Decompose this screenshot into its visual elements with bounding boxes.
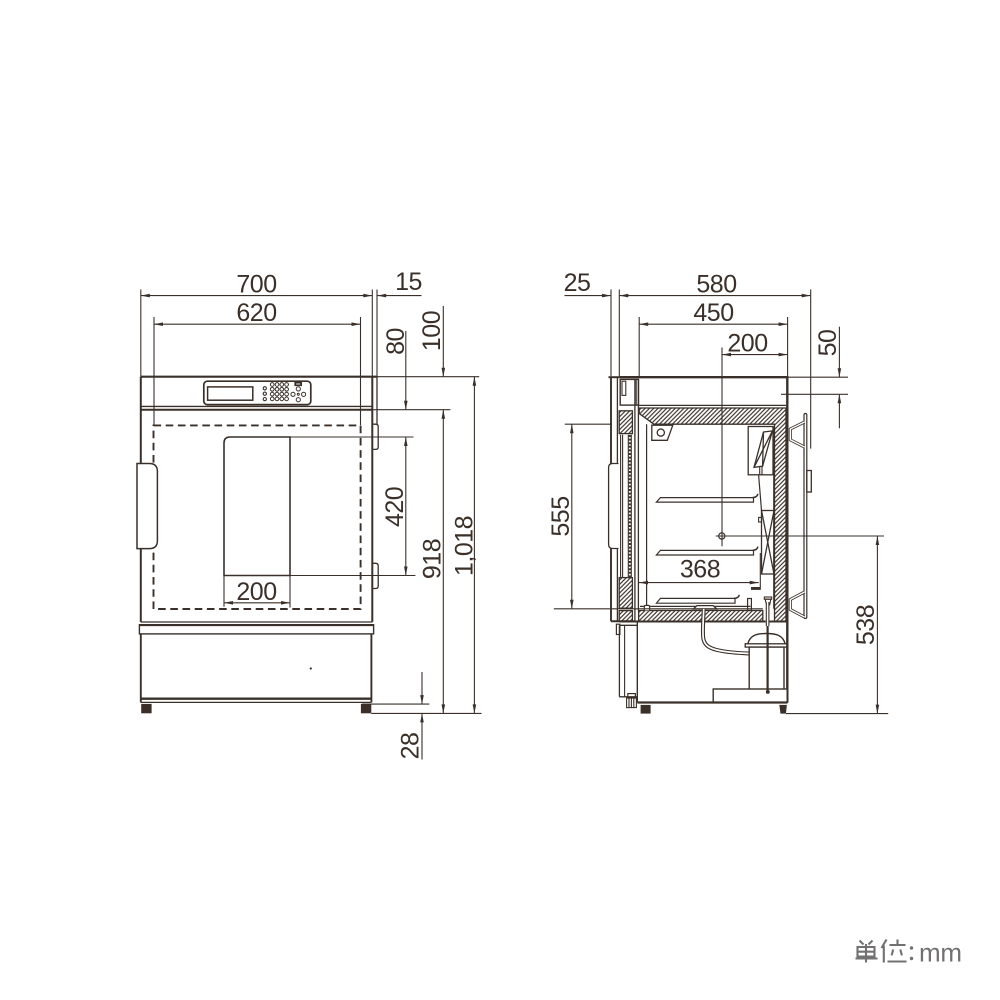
svg-text:28: 28 [396,733,424,760]
svg-text:15: 15 [395,268,422,296]
svg-text:700: 700 [236,271,276,299]
svg-text:420: 420 [381,487,409,527]
svg-text:25: 25 [564,269,591,297]
svg-text:918: 918 [419,539,447,579]
svg-text:1,018: 1,018 [450,516,478,576]
svg-text:580: 580 [696,271,736,299]
svg-text:80: 80 [382,328,410,355]
svg-text:200: 200 [236,578,276,606]
svg-text:450: 450 [693,299,733,327]
svg-text:555: 555 [547,496,575,536]
svg-text:200: 200 [727,330,767,358]
svg-text:mm: mm [919,938,962,968]
svg-text:50: 50 [814,330,842,357]
svg-text:100: 100 [418,311,446,351]
svg-text:538: 538 [852,605,880,645]
svg-text:368: 368 [680,556,720,584]
svg-text:620: 620 [236,299,276,327]
